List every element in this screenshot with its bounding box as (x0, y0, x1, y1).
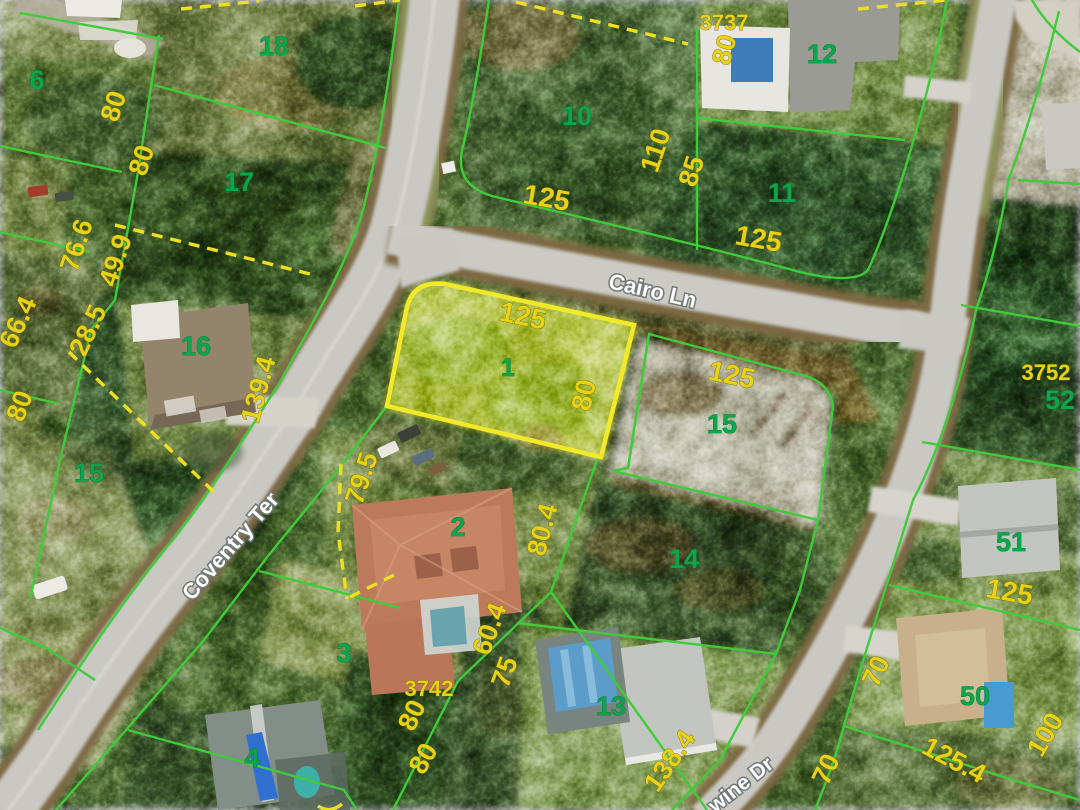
svg-text:2: 2 (450, 512, 465, 542)
svg-text:16: 16 (181, 331, 211, 361)
svg-text:6: 6 (29, 65, 44, 95)
svg-text:51: 51 (996, 527, 1026, 557)
svg-text:52: 52 (1045, 385, 1075, 415)
svg-text:80: 80 (565, 377, 602, 414)
svg-text:15: 15 (707, 409, 737, 439)
svg-text:3742: 3742 (405, 676, 454, 701)
svg-text:50: 50 (960, 681, 990, 711)
svg-text:13: 13 (596, 691, 626, 721)
svg-text:17: 17 (224, 167, 254, 197)
svg-text:15: 15 (74, 458, 104, 488)
svg-text:3: 3 (336, 638, 351, 668)
svg-text:10: 10 (562, 101, 592, 131)
svg-text:4: 4 (244, 743, 259, 773)
svg-text:3737: 3737 (700, 10, 749, 35)
svg-text:12: 12 (807, 39, 837, 69)
svg-text:3752: 3752 (1022, 360, 1071, 385)
svg-text:1: 1 (501, 354, 515, 382)
svg-text:11: 11 (768, 178, 797, 208)
svg-text:14: 14 (669, 544, 699, 574)
svg-text:18: 18 (259, 31, 289, 61)
